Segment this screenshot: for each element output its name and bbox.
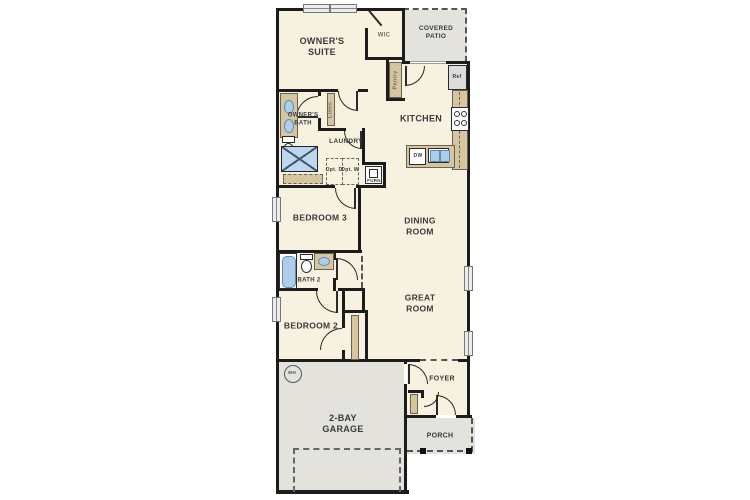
floor-plan: Ref DW Opt. D Opt. W FURN WH OWNER'S SUI… [0, 0, 750, 500]
water-heater-label: WH [288, 370, 296, 376]
burner-icon [454, 120, 460, 126]
wall-garage-top [276, 359, 406, 362]
bedroom3-door-leaf [354, 188, 356, 209]
wall-patio-left [402, 8, 405, 64]
room-label-owners-suite: OWNER'S SUITE [292, 36, 352, 59]
burner-icon [461, 111, 467, 117]
room-label-great-room: GREAT ROOM [397, 292, 443, 313]
shower [281, 146, 318, 172]
wall-hall-great [362, 288, 365, 313]
window [330, 4, 357, 13]
window [272, 297, 281, 322]
room-label-covered-patio: COVERED PATIO [408, 25, 464, 41]
wall-wic-bottom [365, 57, 405, 60]
room-label-dining-room: DINING ROOM [397, 215, 443, 236]
garage-door-dashed [293, 448, 401, 492]
room-label-owners-bath: OWNER'S BATH [281, 113, 325, 128]
window [303, 4, 330, 13]
wall-wic-left [365, 28, 368, 60]
wall-bedroom3-top [276, 185, 335, 188]
room-label-linen: Linen [328, 102, 335, 118]
window [464, 266, 473, 291]
room-label-laundry: LAUNDRY [329, 138, 363, 146]
room-label-garage: 2-BAY GARAGE [318, 413, 368, 436]
burner-icon [461, 120, 467, 126]
sink-bowl [430, 150, 440, 162]
wall-patio-kitchen [446, 61, 470, 64]
toilet [282, 136, 295, 143]
wall-foyer-bottom [404, 415, 436, 418]
wall-bath-right [318, 89, 321, 96]
dishwasher-label: DW [414, 153, 423, 159]
window [272, 197, 281, 222]
bedroom2-door-leaf [336, 291, 338, 313]
burner-icon [454, 111, 460, 117]
range-stove [451, 107, 469, 131]
sink-basin [318, 257, 330, 266]
toilet-bowl [301, 260, 312, 273]
bedroom3-closet-shelf [283, 174, 323, 184]
bedroom2-closet-shelf [351, 315, 359, 360]
room-label-kitchen: KITCHEN [400, 113, 442, 124]
furnace-label: FURN [367, 178, 381, 184]
window [464, 331, 473, 356]
sink-bowl [440, 150, 450, 162]
wall-foyer-top [458, 359, 470, 362]
furnace-inner [369, 169, 378, 178]
owners-suite-door-leaf [356, 91, 358, 111]
opt-washer-label: Opt. W [341, 167, 359, 173]
refrigerator-label: Ref [453, 74, 462, 80]
porch-post [420, 448, 426, 454]
wall-pantry-bottom [386, 98, 405, 101]
porch-post [466, 448, 472, 454]
room-label-bedroom2: BEDROOM 2 [284, 321, 338, 332]
foyer-opening-dashed [420, 359, 458, 361]
room-label-bath2: BATH 2 [297, 277, 320, 285]
wall-bedroom3-right [358, 185, 361, 253]
garage-entry-door-leaf [408, 364, 410, 384]
wall-suite-bottom [276, 89, 338, 92]
room-label-porch: PORCH [427, 433, 454, 442]
foyer-closet-shelf [410, 394, 418, 414]
room-label-foyer: FOYER [429, 376, 455, 385]
wall-closet2-right [365, 310, 368, 362]
wall-foyer-top [406, 359, 420, 362]
bathtub-basin [282, 256, 296, 288]
hall-opening-dashed [361, 256, 363, 288]
wall-laundry-top [318, 128, 346, 131]
pantry-door-leaf [405, 66, 407, 86]
bath2-door-leaf [336, 258, 338, 280]
patio-slider-door [410, 61, 446, 64]
room-label-wic: WIC [378, 32, 391, 40]
room-label-bedroom3: BEDROOM 3 [293, 213, 347, 224]
wall-suite-bottom [358, 89, 368, 92]
room-label-pantry: Pantry [393, 71, 400, 90]
wall-garage-right [404, 384, 407, 494]
